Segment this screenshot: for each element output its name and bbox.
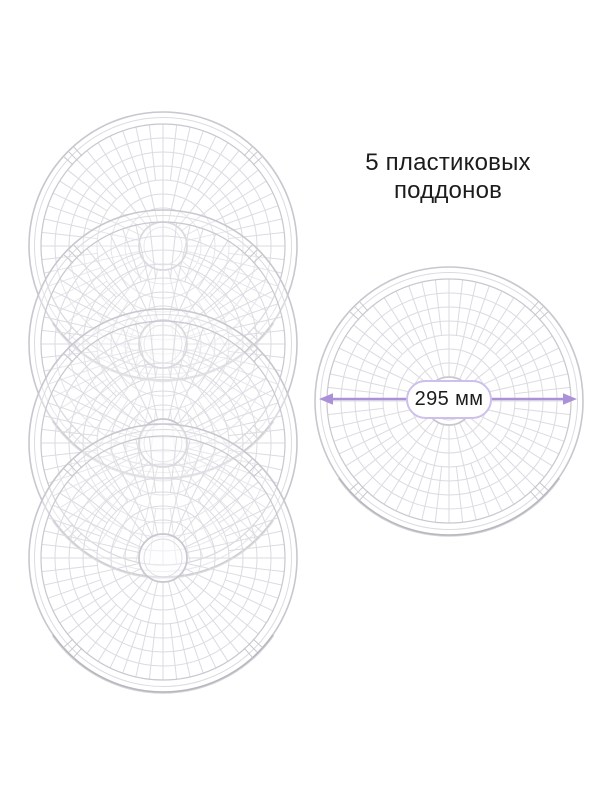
trays-illustration [0, 0, 600, 800]
diameter-label: 295 мм [406, 380, 492, 419]
product-title-line2: поддонов [298, 177, 598, 205]
product-card: 5 пластиковых поддонов 295 мм [0, 0, 600, 800]
stacked-tray-4 [29, 424, 297, 693]
product-title-line1: 5 пластиковых [298, 149, 598, 177]
diameter-value: 295 мм [415, 388, 484, 411]
product-title: 5 пластиковых поддонов [298, 149, 598, 205]
